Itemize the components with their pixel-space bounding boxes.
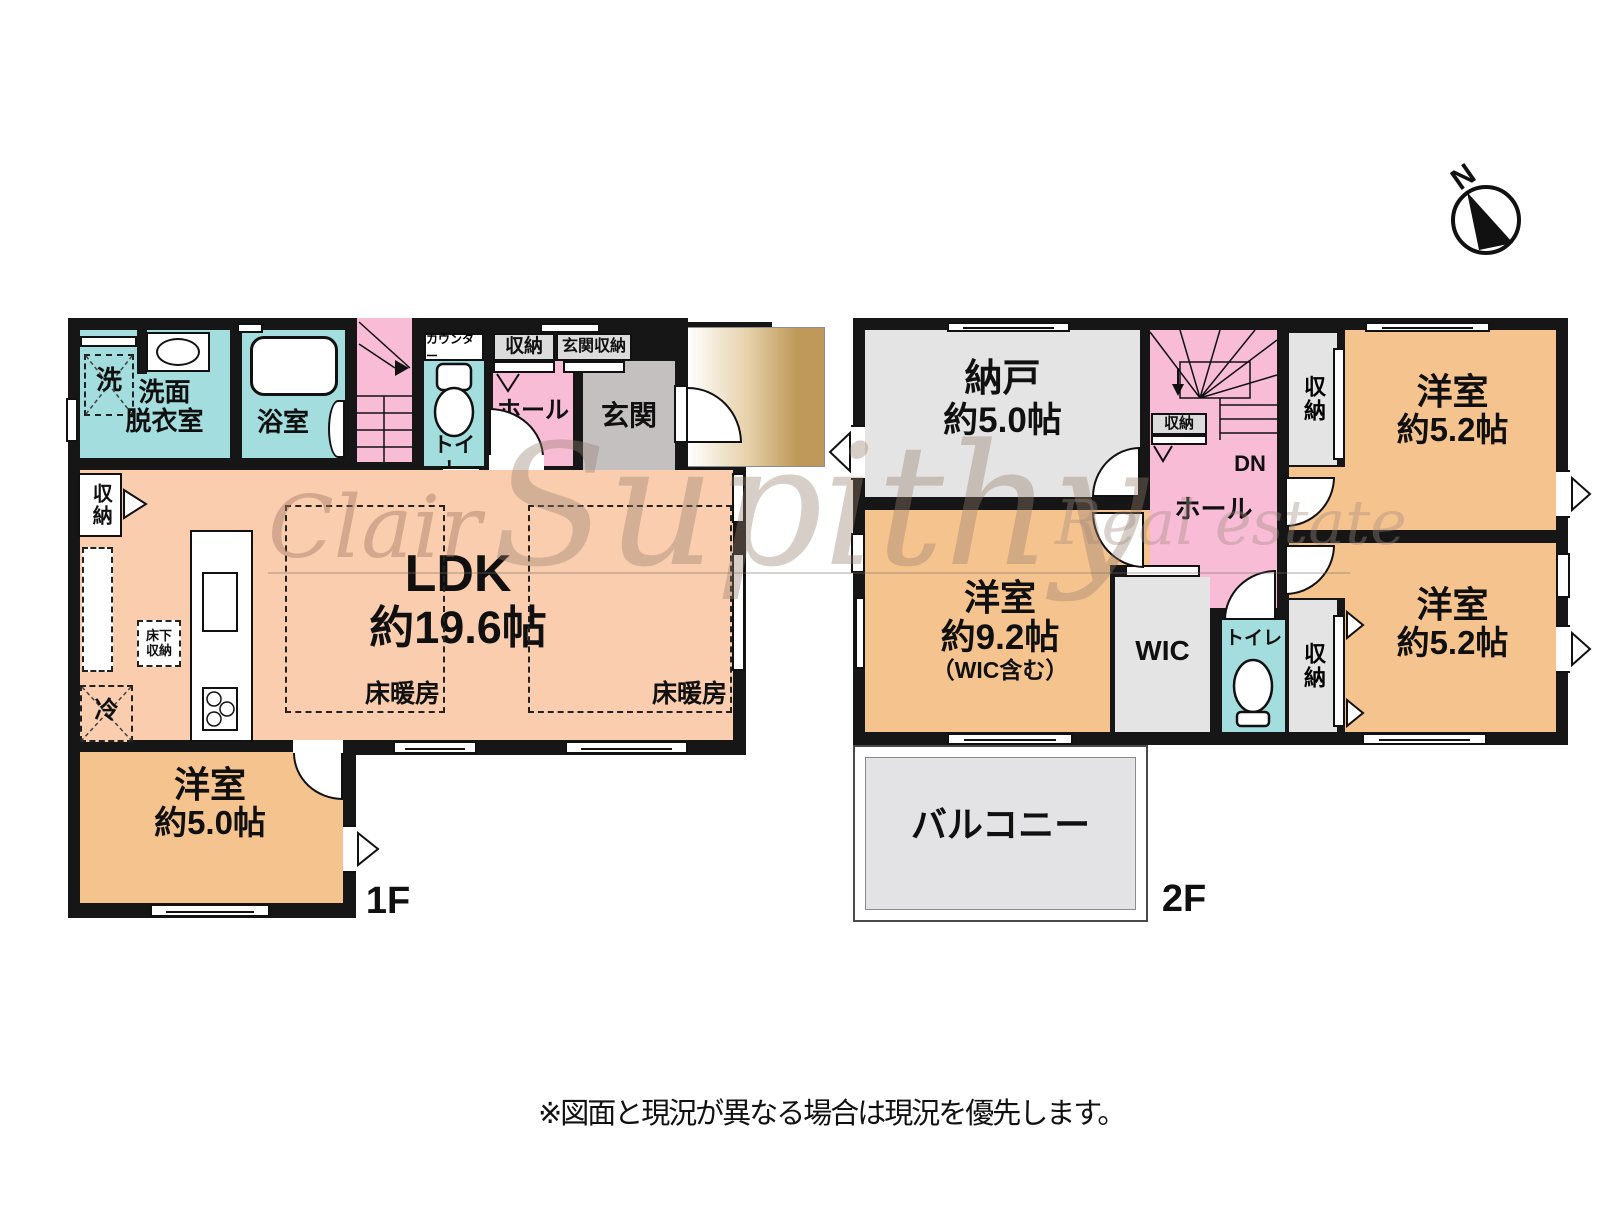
left-open-arrow bbox=[830, 433, 852, 473]
stove-burners-icon bbox=[204, 690, 236, 728]
western-room-2f-bottom-label: 洋室 約5.2帖 bbox=[1375, 585, 1530, 662]
entry-door-leaf bbox=[674, 385, 688, 443]
balcony-label: バルコニー bbox=[865, 805, 1136, 845]
fold-door-mark-2f bbox=[1153, 446, 1175, 464]
floor-heating-area-1: 床暖房 bbox=[285, 505, 445, 713]
room-br-open-arrow bbox=[1572, 633, 1592, 667]
closet-top-right-label: 収納 bbox=[1297, 375, 1329, 423]
western-room-2f-left-label: 洋室 約9.2帖 （WIC含む） bbox=[895, 578, 1105, 683]
closet-bottom-right-door bbox=[1333, 615, 1345, 727]
closet-br-arrow-1 bbox=[1347, 612, 1365, 640]
floor1-label: 1F bbox=[358, 880, 418, 923]
floor-heating-label: 床暖房 bbox=[652, 674, 727, 710]
room-br-side-gap bbox=[1556, 625, 1570, 673]
room-tr-top-window bbox=[1365, 322, 1490, 332]
stairs-down-label: DN bbox=[1228, 452, 1272, 477]
wic-label: WIC bbox=[1115, 635, 1210, 666]
ldk-bottom-window-1 bbox=[393, 741, 477, 754]
room-br-side-window bbox=[1556, 553, 1570, 598]
hall-storage-door bbox=[493, 361, 555, 373]
stair-storage-door bbox=[1151, 435, 1207, 445]
western-room-1f-label: 洋室 約5.0帖 bbox=[110, 765, 310, 842]
hall-2f-label: ホール bbox=[1150, 495, 1277, 524]
entrance-top-window bbox=[540, 323, 600, 333]
room-left-side-window-2 bbox=[855, 597, 865, 669]
toilet-1f-icon bbox=[424, 362, 484, 434]
washroom-window bbox=[80, 336, 137, 347]
counter-label: カウンター bbox=[426, 330, 482, 364]
closet-bottom-right: 収納 bbox=[1289, 600, 1337, 732]
room-left-side-window-1 bbox=[851, 533, 865, 573]
washbasin-bowl bbox=[156, 338, 200, 366]
side-open-arrow bbox=[358, 833, 380, 867]
storeroom-left-gap bbox=[851, 425, 865, 480]
western-room-side-gap bbox=[343, 825, 356, 873]
watermark-underline bbox=[268, 572, 1350, 574]
stair-storage: 収納 bbox=[1151, 413, 1207, 435]
storeroom-label: 納戸 約5.0帖 bbox=[900, 358, 1105, 440]
floor2-label: 2F bbox=[1154, 878, 1214, 921]
floor-plan-canvas: 洗 洗面 脱衣室 浴室 UP カウンター トイレ 収納 ホー bbox=[0, 0, 1622, 1228]
room-tr-side-gap bbox=[1556, 470, 1570, 518]
floor-heating-area-2: 床暖房 bbox=[528, 505, 732, 713]
storeroom-top-window bbox=[947, 322, 1070, 332]
bathroom-label: 浴室 bbox=[238, 408, 328, 437]
western-room-doorway bbox=[293, 740, 343, 753]
closet-top-right-door bbox=[1333, 348, 1345, 460]
bath-window bbox=[237, 323, 263, 333]
bathtub bbox=[250, 336, 338, 396]
footnote: ※図面と現況が異なる場合は現況を優先します。 bbox=[538, 1090, 1124, 1132]
fold-door-mark bbox=[496, 374, 522, 394]
western-room-2f-top-label: 洋室 約5.2帖 bbox=[1375, 372, 1530, 449]
compass-north-letter: N bbox=[1445, 157, 1482, 196]
entrance-storage-cabinet bbox=[563, 361, 625, 373]
kitchen-sink bbox=[202, 572, 238, 632]
toilet-2f-label: トイレ bbox=[1222, 628, 1285, 649]
bath-door bbox=[328, 400, 345, 458]
stairs-1f bbox=[357, 318, 412, 462]
room-br-bottom-window bbox=[1362, 733, 1487, 745]
ldk-right-window-upper bbox=[732, 473, 745, 523]
fridge-label: 冷 bbox=[80, 698, 133, 725]
stairs-1f-treads bbox=[357, 318, 412, 462]
cupboard bbox=[82, 547, 113, 672]
hall-storage: 収納 bbox=[493, 333, 555, 361]
floor-heating-label: 床暖房 bbox=[365, 674, 440, 710]
underfloor-storage-label: 床下 収納 bbox=[146, 629, 172, 658]
closet-bottom-right-label: 収納 bbox=[1297, 642, 1329, 690]
ldk-right-window-lower bbox=[732, 553, 745, 671]
entrance-label: 玄関 bbox=[583, 400, 675, 431]
closet-open-arrow bbox=[124, 490, 148, 520]
closet-top-right: 収納 bbox=[1289, 333, 1337, 465]
washroom-side-window bbox=[66, 398, 78, 442]
closet-br-arrow-2 bbox=[1347, 700, 1365, 728]
western-room-bottom-window bbox=[150, 904, 270, 917]
underfloor-storage: 床下 収納 bbox=[137, 620, 181, 667]
entrance-storage: 玄関収納 bbox=[556, 333, 632, 361]
compass-icon: N bbox=[1440, 158, 1550, 268]
washroom-label: 洗面 脱衣室 bbox=[92, 378, 237, 436]
ldk-bottom-window-2 bbox=[565, 741, 688, 754]
toilet-counter: カウンター bbox=[424, 333, 484, 361]
room-tr-open-arrow bbox=[1572, 478, 1592, 512]
ldk-wall-closet: 収納 bbox=[78, 473, 122, 537]
balcony-slider-window bbox=[947, 733, 1073, 745]
toilet-2f-icon bbox=[1222, 652, 1285, 730]
